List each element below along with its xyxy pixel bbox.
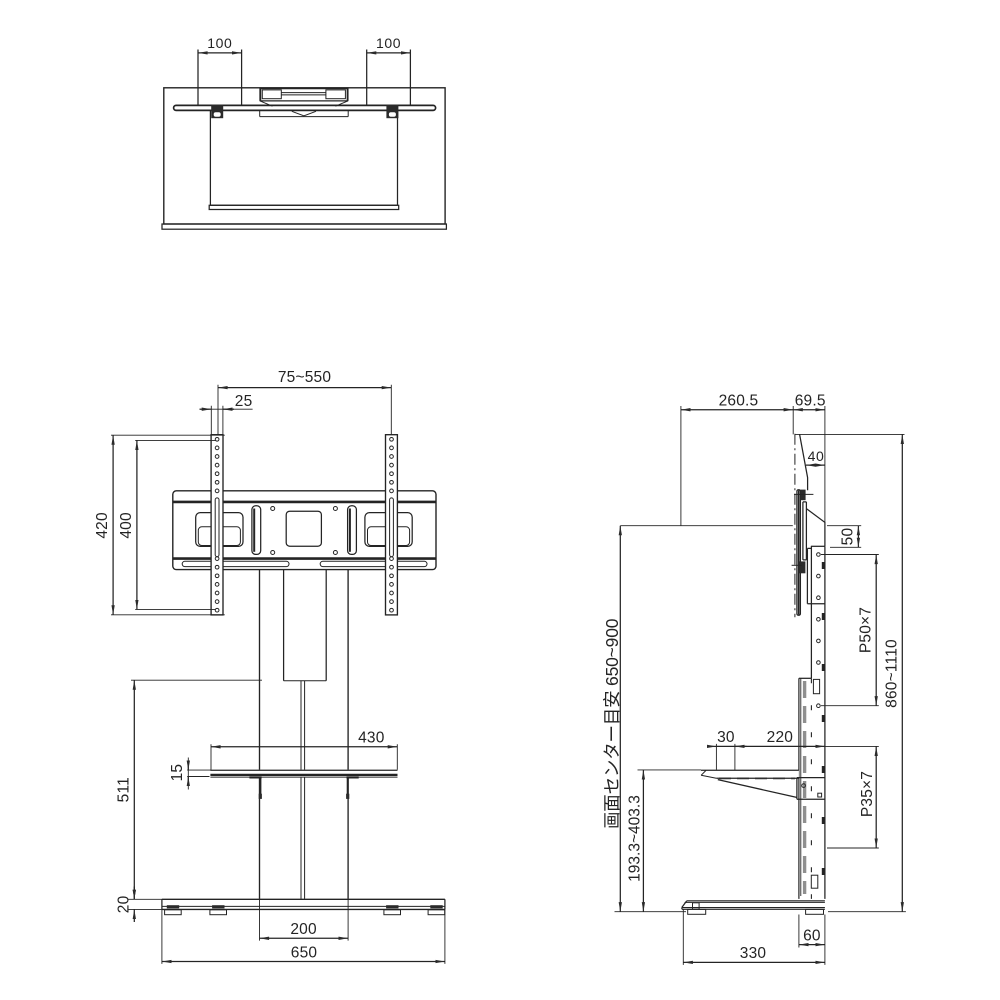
svg-text:75~550: 75~550 bbox=[278, 369, 332, 386]
svg-text:P35×7: P35×7 bbox=[859, 771, 876, 817]
svg-text:430: 430 bbox=[358, 729, 385, 746]
svg-text:511: 511 bbox=[116, 777, 133, 802]
svg-text:40: 40 bbox=[808, 448, 825, 464]
svg-text:100: 100 bbox=[376, 35, 401, 51]
svg-text:30: 30 bbox=[717, 729, 735, 746]
svg-text:193.3~403.3: 193.3~403.3 bbox=[627, 795, 644, 882]
svg-text:420: 420 bbox=[94, 512, 111, 539]
svg-text:50: 50 bbox=[840, 528, 857, 546]
svg-text:260.5: 260.5 bbox=[719, 393, 759, 410]
svg-text:20: 20 bbox=[116, 895, 133, 913]
svg-text:69.5: 69.5 bbox=[795, 393, 826, 410]
svg-text:330: 330 bbox=[740, 945, 767, 962]
svg-text:25: 25 bbox=[235, 393, 253, 410]
svg-text:100: 100 bbox=[207, 35, 232, 51]
svg-text:200: 200 bbox=[290, 921, 317, 938]
svg-text:220: 220 bbox=[767, 729, 794, 746]
svg-text:画面センター目安 650~900: 画面センター目安 650~900 bbox=[602, 618, 622, 829]
svg-text:400: 400 bbox=[118, 512, 135, 539]
svg-text:15: 15 bbox=[169, 764, 186, 782]
svg-text:60: 60 bbox=[803, 927, 821, 944]
svg-text:P50×7: P50×7 bbox=[858, 607, 875, 653]
svg-text:650: 650 bbox=[291, 944, 318, 961]
svg-text:860~1110: 860~1110 bbox=[883, 639, 900, 708]
